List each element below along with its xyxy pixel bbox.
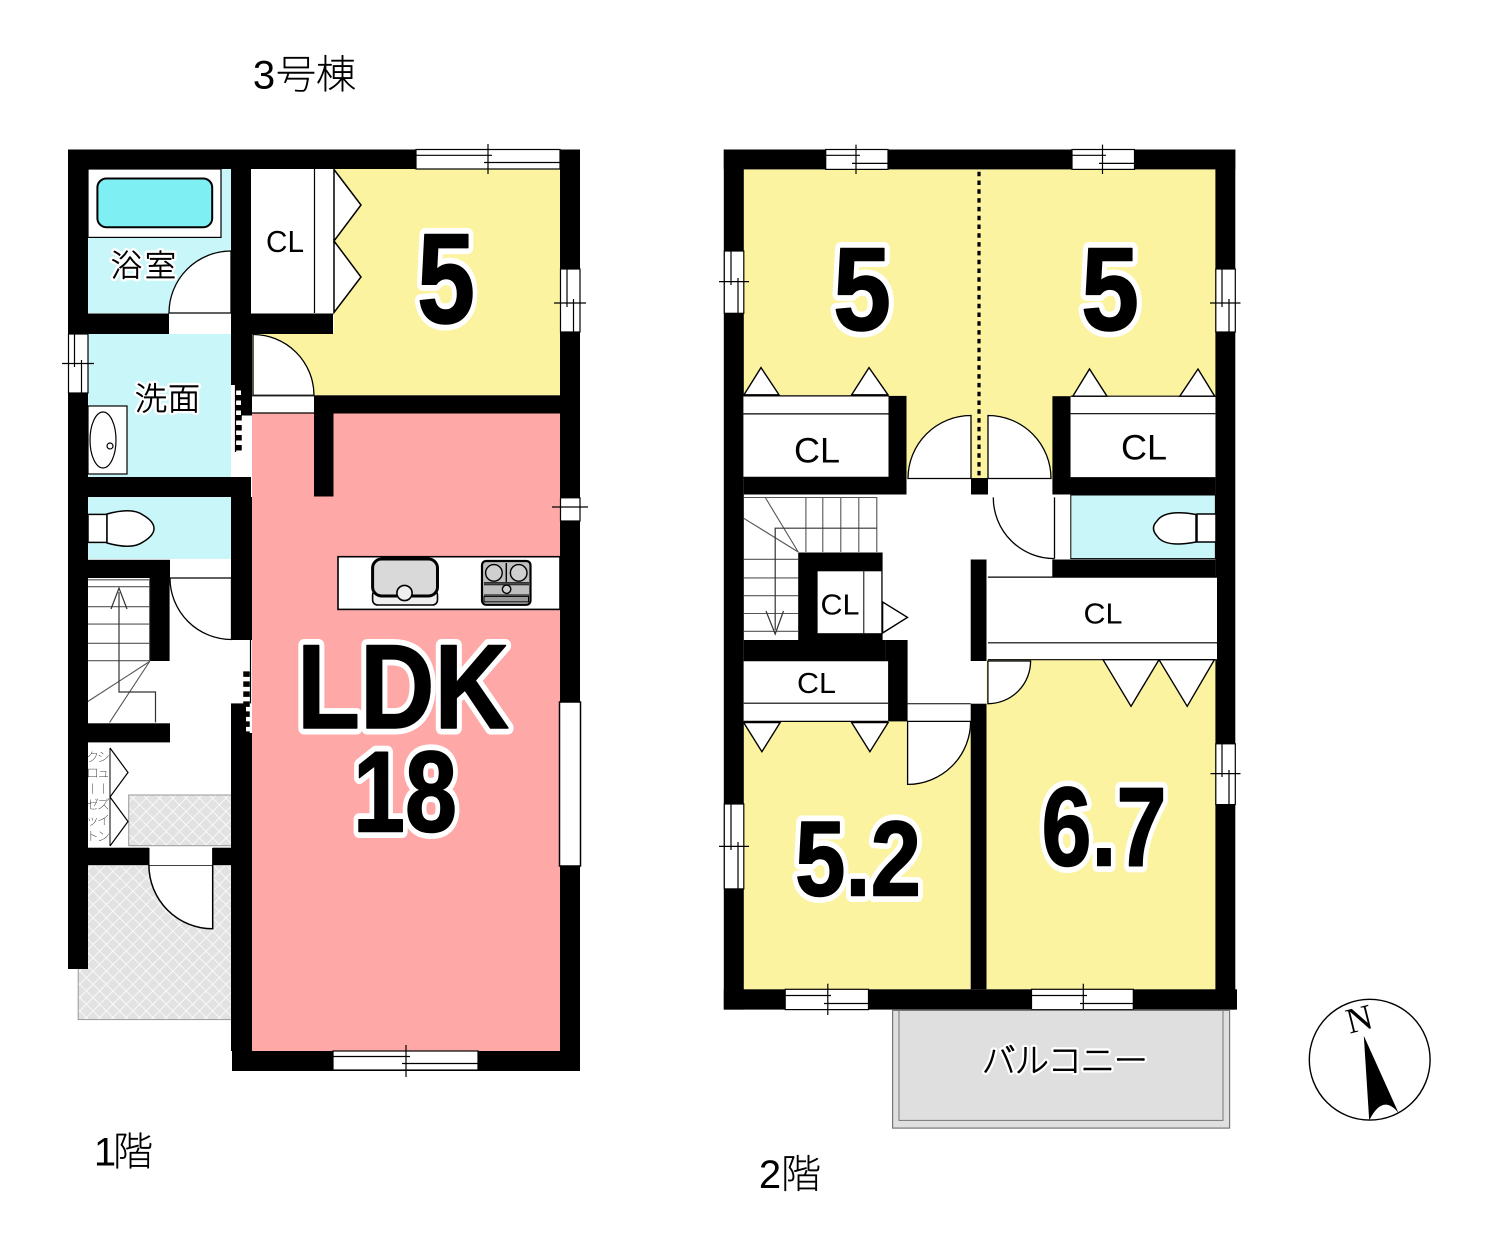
svg-text:CL: CL: [266, 224, 304, 259]
svg-text:5.2: 5.2: [795, 799, 921, 919]
svg-text:5: 5: [1081, 224, 1139, 356]
svg-text:5: 5: [417, 208, 475, 351]
svg-text:6.7: 6.7: [1042, 765, 1167, 890]
svg-text:CL: CL: [797, 668, 836, 700]
svg-text:18: 18: [353, 729, 457, 857]
svg-text:CL: CL: [1121, 429, 1167, 468]
svg-text:CL: CL: [794, 432, 840, 471]
svg-text:CL: CL: [821, 590, 860, 622]
svg-text:3: 3: [253, 54, 275, 98]
svg-text:5: 5: [833, 224, 891, 356]
svg-text:2: 2: [759, 1153, 781, 1197]
svg-text:CL: CL: [1084, 599, 1123, 631]
svg-text:1: 1: [94, 1131, 116, 1175]
